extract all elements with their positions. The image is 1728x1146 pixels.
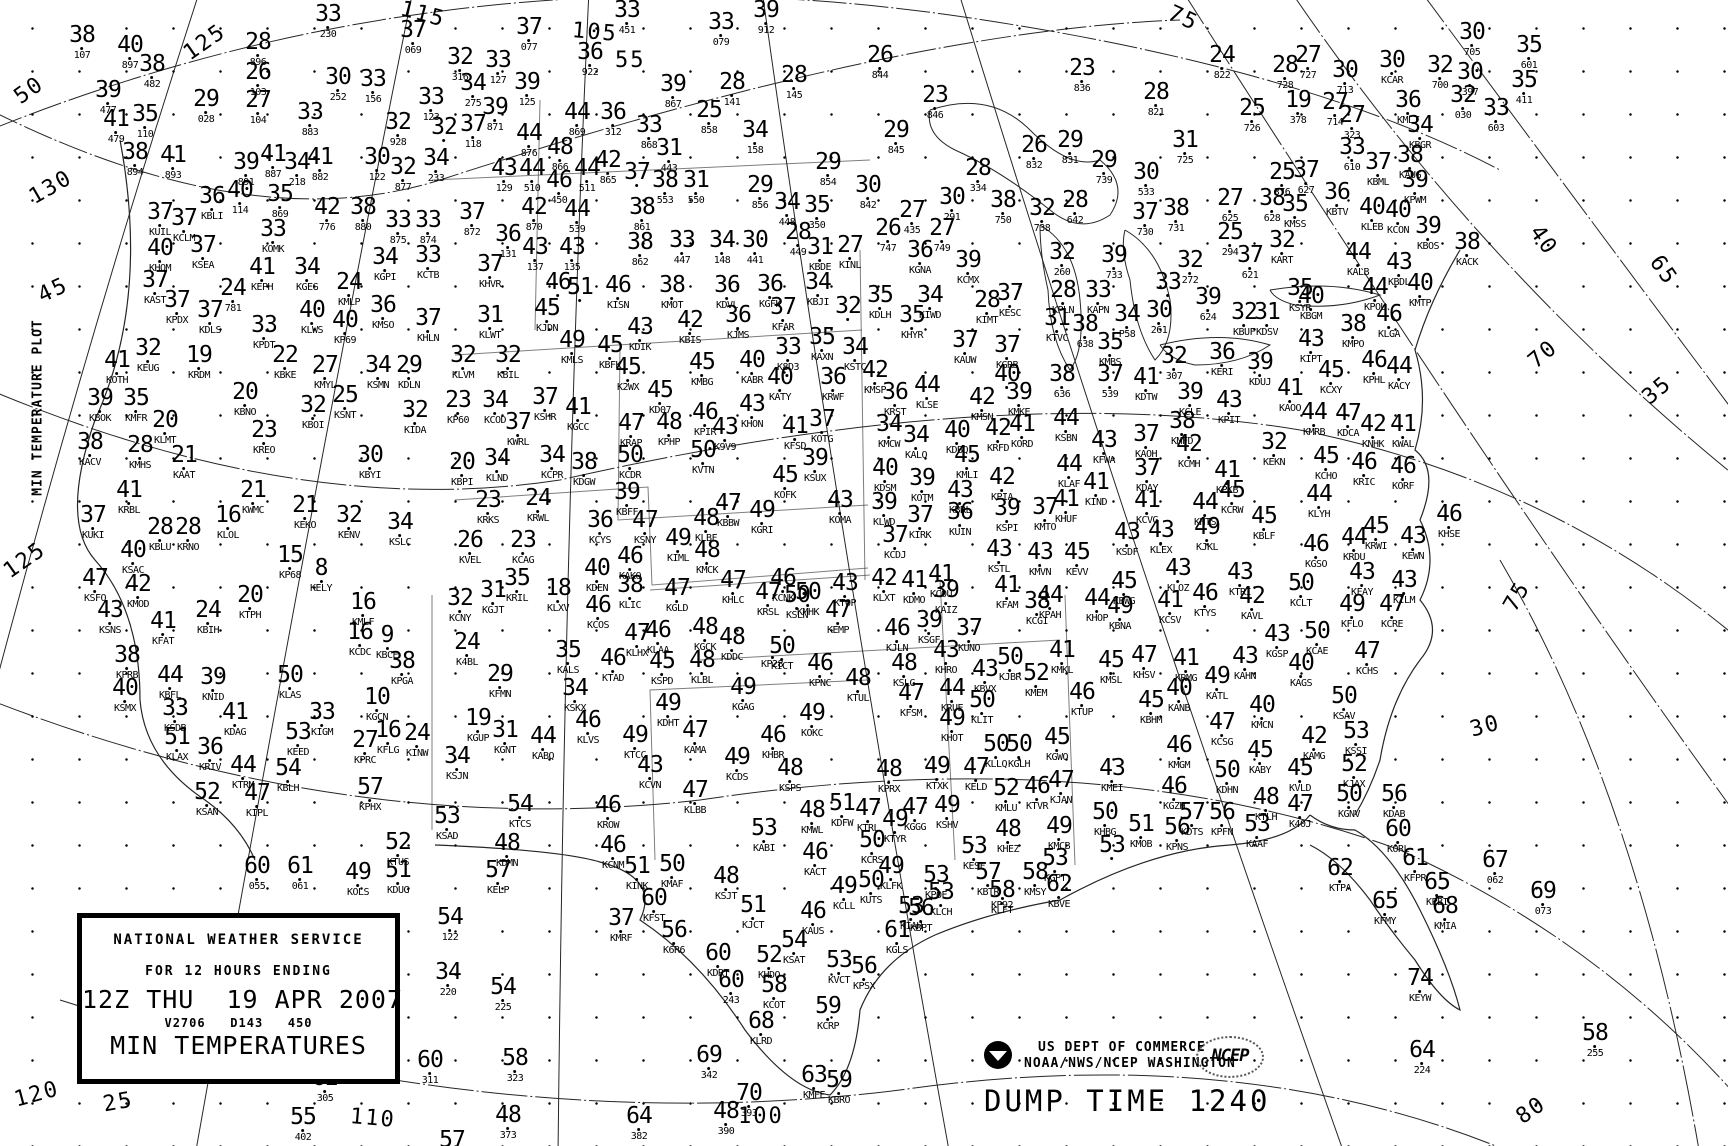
- station-plot: 38482: [139, 53, 165, 90]
- station-plot: 29854: [815, 151, 841, 188]
- station-plot: 37872: [459, 201, 485, 238]
- station-plot: 40KMTP: [1407, 272, 1433, 309]
- station-plot: 26747: [875, 217, 901, 254]
- station-plot: 35KALS: [555, 639, 581, 676]
- station-plot: 39KAIZ: [933, 579, 959, 616]
- station-plot: 34KSMN: [365, 354, 391, 391]
- station-plot: 43KDIK: [627, 316, 653, 353]
- station-plot: 26832: [1021, 134, 1047, 171]
- station-plot: 45KSPD: [649, 650, 675, 687]
- station-plot: 28KMHS: [127, 434, 153, 471]
- station-plot: 27KPRC: [352, 729, 378, 766]
- station-plot: 32: [835, 295, 861, 322]
- station-plot: 47KIPL: [244, 782, 270, 819]
- station-plot: 50KJBR: [997, 646, 1023, 683]
- station-plot: 46KLGA: [1376, 303, 1402, 340]
- station-plot: 19KRDM: [186, 344, 212, 381]
- station-plot: 41882: [307, 146, 333, 183]
- station-plot: 51KJCT: [740, 894, 766, 931]
- station-plot: 41KIND: [1083, 471, 1109, 508]
- station-plot: 51KLAX: [164, 726, 190, 763]
- station-plot: 49KCLL: [831, 875, 857, 912]
- station-plot: 40KATY: [767, 366, 793, 403]
- station-plot: 44KABQ: [530, 725, 556, 762]
- station-plot: 43KSDF: [1114, 521, 1140, 558]
- station-plot: 56K6R6: [661, 919, 687, 956]
- station-plot: 35KMSS: [1282, 193, 1308, 230]
- station-plot: 44KALB: [1345, 241, 1371, 278]
- station-plot: 37KSEA: [190, 234, 216, 271]
- station-plot: 67062: [1482, 849, 1508, 886]
- station-plot: 47KHSV: [1131, 644, 1157, 681]
- station-plot: 21KWMC: [240, 479, 266, 516]
- station-plot: 32KBOI: [300, 394, 326, 431]
- station-plot: 30705: [1459, 21, 1485, 58]
- station-plot: 34KALO: [903, 424, 929, 461]
- station-plot: 33KCTB: [415, 244, 441, 281]
- station-plot: 38731: [1163, 197, 1189, 234]
- station-plot: 44KSBN: [1053, 407, 1079, 444]
- station-plot: 28642: [1062, 189, 1088, 226]
- station-plot: 40114: [227, 179, 253, 216]
- station-plot: 48390: [713, 1100, 739, 1137]
- station-plot: 49KIML: [665, 527, 691, 564]
- station-plot: 28145: [781, 64, 807, 101]
- station-plot: 27104: [245, 89, 271, 126]
- station-plot: 20KLMT: [152, 409, 178, 446]
- station-plot: 47KEMP: [825, 599, 851, 636]
- station-plot: 37730: [1132, 201, 1158, 238]
- station-plot: 62KTPA: [1327, 857, 1353, 894]
- station-plot: 36KRIV: [197, 736, 223, 773]
- station-plot: 43KPIT: [1216, 389, 1242, 426]
- dept-of-commerce-label: US DEPT OF COMMERCE: [1038, 1040, 1206, 1055]
- station-plot: 44539: [564, 198, 590, 235]
- station-plot: 34KMCW: [876, 413, 902, 450]
- station-plot: 36KGNA: [907, 239, 933, 276]
- station-plot: 43KSNS: [97, 599, 123, 636]
- station-plot: 48KMCK: [694, 539, 720, 576]
- station-plot: 53KEED: [285, 721, 311, 758]
- station-plot: 37KESC: [997, 282, 1023, 319]
- station-plot: 43KOMA: [827, 489, 853, 526]
- station-plot: 47KCHS: [1354, 640, 1380, 677]
- station-plot: 38KLIC: [617, 574, 643, 611]
- station-plot: 34158: [742, 119, 768, 156]
- station-plot: 44876: [516, 122, 542, 159]
- station-plot: 33079: [708, 11, 734, 48]
- station-plot: 49KSHV: [934, 794, 960, 831]
- station-plot: 64224: [1409, 1039, 1435, 1076]
- station-plot: 46KTAD: [600, 647, 626, 684]
- station-plot: 49KBNA: [1107, 595, 1133, 632]
- station-plot: 45KJDN: [534, 297, 560, 334]
- station-plot: 56KDAB: [1381, 783, 1407, 820]
- station-plot: 60311: [417, 1049, 443, 1086]
- station-plot: 40KMCN: [1249, 694, 1275, 731]
- station-plot: 32877: [390, 156, 416, 193]
- station-plot: 21KAAT: [171, 444, 197, 481]
- station-plot: 46KPNC: [807, 652, 833, 689]
- station-plot: 39KBOS: [1415, 215, 1441, 252]
- station-plot: 47KSNY: [632, 509, 658, 546]
- station-plot: 42776: [314, 196, 340, 233]
- station-plot: 45KCRW: [1219, 479, 1245, 516]
- station-plot: 33KIGM: [309, 701, 335, 738]
- station-plot: 33KOMK: [260, 218, 286, 255]
- station-plot: 50KGLH: [1006, 733, 1032, 770]
- station-plot: 43KHON: [739, 393, 765, 430]
- station-plot: 43KGSP: [1264, 623, 1290, 660]
- station-plot: 50KCRS: [859, 829, 885, 866]
- station-plot: 40KSMX: [112, 677, 138, 714]
- station-plot: 36KBTV: [1324, 181, 1350, 218]
- station-plot: 46KPHL: [1361, 349, 1387, 386]
- station-plot: 23846: [922, 84, 948, 121]
- station-plot: 60243: [718, 969, 744, 1006]
- station-plot: 37KAUW: [952, 329, 978, 366]
- station-plot: 24KRWL: [525, 487, 551, 524]
- station-plot: 51KDUG: [385, 859, 411, 896]
- station-plot: 38KACK: [1454, 231, 1480, 268]
- station-plot: 33610: [1339, 136, 1365, 173]
- station-plot: 49KDHT: [655, 692, 681, 729]
- station-plot: 35KRIL: [504, 567, 530, 604]
- station-plot: 49KATL: [1204, 665, 1230, 702]
- station-plot: 48KDDC: [719, 626, 745, 663]
- station-plot: 46KTUP: [1069, 681, 1095, 718]
- station-plot: 37621: [1237, 244, 1263, 281]
- station-plot: 39KBOK: [87, 387, 113, 424]
- station-plot: 34148: [709, 229, 735, 266]
- station-plot: 28334: [965, 157, 991, 194]
- station-plot: 38636: [1049, 363, 1075, 400]
- station-plot: 41KOTH: [104, 349, 130, 386]
- station-plot: 51KDFW: [829, 792, 855, 829]
- station-plot: 28KIMT: [974, 289, 1000, 326]
- station-plot: 46KTVR: [1024, 775, 1050, 812]
- station-plot: 46KGZH: [1161, 775, 1187, 812]
- station-plot: 41KGCC: [565, 396, 591, 433]
- station-plot: 47KAMA: [682, 719, 708, 756]
- station-plot: 25376: [1269, 161, 1295, 198]
- station-plot: 41KWAL: [1390, 413, 1416, 450]
- station-plot: 53KGPT: [1042, 847, 1068, 884]
- station-plot: 35KMFR: [123, 387, 149, 424]
- station-plot: 45KEVV: [1064, 541, 1090, 578]
- station-plot: 46KISN: [605, 274, 631, 311]
- station-plot: 23836: [1069, 57, 1095, 94]
- station-plot: 41KRMG: [1173, 647, 1199, 684]
- station-plot: 38KDGW: [571, 451, 597, 488]
- station-plot: 49KJKL: [1194, 516, 1220, 553]
- latlon-label: 25: [101, 1088, 135, 1118]
- station-plot: 53: [1099, 834, 1125, 861]
- station-plot: 43KSTL: [986, 538, 1012, 575]
- station-plot: 38KMPO: [1340, 313, 1366, 350]
- station-plot: 48KTLH: [1253, 786, 1279, 823]
- station-plot: 49KMCB: [1046, 815, 1072, 852]
- station-plot: 48KTUL: [845, 667, 871, 704]
- station-plot: 33127: [485, 49, 511, 86]
- station-plot: 37069: [400, 19, 426, 56]
- station-plot: 39KOTM: [909, 467, 935, 504]
- station-plot: 45KGWO: [1044, 726, 1070, 763]
- station-plot: 53KSAD: [434, 805, 460, 842]
- station-plot: 37539: [1097, 363, 1123, 400]
- station-plot: 49KGRI: [749, 499, 775, 536]
- station-plot: 29856: [747, 174, 773, 211]
- station-plot: 41KORD: [1009, 413, 1035, 450]
- station-plot: 37KCDJ: [882, 524, 908, 561]
- station-plot: 32KIDA: [402, 399, 428, 436]
- station-plot: 30261: [1146, 299, 1172, 336]
- station-plot: 29KFMN: [487, 663, 513, 700]
- station-plot: 69073: [1530, 880, 1556, 917]
- station-plot: 41KHUF: [1053, 488, 1079, 525]
- station-plot: 45KBLF: [1251, 505, 1277, 542]
- station-plot: 49KHOT: [939, 707, 965, 744]
- station-plot: 43KEWN: [1400, 525, 1426, 562]
- station-plot: 42KNHK: [1360, 413, 1386, 450]
- station-plot: 35869: [267, 183, 293, 220]
- station-plot: 48KSJT: [713, 865, 739, 902]
- station-plot: 41KFAT: [150, 610, 176, 647]
- station-plot: 43129: [491, 157, 517, 194]
- station-plot: 38894: [122, 141, 148, 178]
- station-plot: 32030: [1450, 84, 1476, 121]
- station-plot: 44KLAF: [1056, 453, 1082, 490]
- station-plot: 40KLEB: [1359, 196, 1385, 233]
- station-plot: 38861: [629, 196, 655, 233]
- station-plot: 49KOLS: [345, 861, 371, 898]
- station-plot: 32307: [1161, 345, 1187, 382]
- station-plot: 70393: [736, 1082, 762, 1119]
- station-plot: 44KMRB: [1301, 401, 1327, 438]
- station-plot: 32KBIL: [495, 344, 521, 381]
- station-plot: 44KLSE: [914, 374, 940, 411]
- station-plot: 32KENV: [336, 504, 362, 541]
- station-plot: 47KGLD: [664, 577, 690, 614]
- station-plot: 38KMOT: [659, 274, 685, 311]
- station-plot: 23KREO: [251, 419, 277, 456]
- station-plot: 42KRFD: [985, 417, 1011, 454]
- station-plot: 59KBRO: [826, 1069, 852, 1106]
- station-plot: 33875: [385, 209, 411, 246]
- legend-valid-time: 12Z THU 19 APR 2007: [82, 985, 395, 1014]
- station-plot: 21KEKO: [292, 494, 318, 531]
- station-plot: 49KTXK: [924, 755, 950, 792]
- station-plot: 37KPDX: [164, 289, 190, 326]
- station-plot: 37627: [1293, 159, 1319, 196]
- station-plot: 52KMEM: [1023, 662, 1049, 699]
- station-plot: 63KMFE: [801, 1064, 827, 1101]
- station-plot: 44KACY: [1386, 355, 1412, 392]
- station-plot: 48KHEZ: [995, 818, 1021, 855]
- station-plot: 39624: [1195, 286, 1221, 323]
- station-plot: 8KELY: [310, 557, 332, 594]
- station-plot: 47KLBB: [682, 779, 708, 816]
- station-plot: 60055: [244, 855, 270, 892]
- station-plot: 43137: [522, 236, 548, 273]
- station-plot: 24781: [220, 277, 246, 314]
- station-plot: 39733: [1101, 244, 1127, 281]
- station-plot: 39KNID: [200, 666, 226, 703]
- station-plot: 58255: [1582, 1022, 1608, 1059]
- vertical-axis-title: MIN TEMPERATURE PLOT: [31, 308, 46, 508]
- legend-subtitle: FOR 12 HOURS ENDING: [82, 964, 395, 979]
- station-plot: 47KGGG: [902, 796, 928, 833]
- station-plot: KP92: [991, 897, 1013, 911]
- station-plot: 42KMOD: [125, 573, 151, 610]
- station-plot: 46KORF: [1390, 455, 1416, 492]
- station-plot: 36KRWF: [820, 366, 846, 403]
- station-plot: 31KGNT: [492, 719, 518, 756]
- station-plot: 54KBLH: [275, 757, 301, 794]
- station-plot: 40KABR: [739, 349, 765, 386]
- station-plot: 50KLAS: [277, 664, 303, 701]
- station-plot: 41KMKL: [1049, 639, 1075, 676]
- station-plot: 42KCMH: [1176, 433, 1202, 470]
- latlon-label: 110: [349, 1104, 397, 1133]
- station-plot: 38862: [627, 231, 653, 268]
- station-plot: 37KWRL: [505, 411, 531, 448]
- station-plot: 49KOKC: [799, 702, 825, 739]
- station-plot: 35601: [1516, 34, 1542, 71]
- station-plot: 45KMBG: [689, 351, 715, 388]
- station-plot: 38KACV: [77, 431, 103, 468]
- station-plot: 45K2WX: [615, 356, 641, 393]
- station-plot: 46KJLN: [884, 617, 910, 654]
- station-plot: 32KEKN: [1261, 431, 1287, 468]
- station-plot: 46KTYS: [1192, 582, 1218, 619]
- station-plot: 34KGEG: [294, 256, 320, 293]
- station-plot: 40KBGM: [1298, 285, 1324, 322]
- station-plot: 54122: [437, 906, 463, 943]
- station-plot: 40KP69: [332, 309, 358, 346]
- station-plot: 24822: [1209, 44, 1235, 81]
- station-plot: 43KMEI: [1099, 757, 1125, 794]
- station-plot: 29831: [1057, 129, 1083, 166]
- station-plot: 27KINL: [837, 234, 863, 271]
- station-plot: 49KFLO: [1339, 593, 1365, 630]
- station-plot: 44510: [519, 157, 545, 194]
- station-plot: 23KCAG: [510, 529, 536, 566]
- station-plot: 35110: [132, 103, 158, 140]
- station-plot: 41KDAG: [222, 701, 248, 738]
- station-plot: 46KHSE: [1436, 503, 1462, 540]
- station-plot: 31725: [1172, 129, 1198, 166]
- station-plot: 22KBKE: [272, 344, 298, 381]
- station-plot: 47KCSG: [1209, 711, 1235, 748]
- legend-parameter: MIN TEMPERATURES: [82, 1031, 395, 1060]
- station-plot: 29739: [1091, 149, 1117, 186]
- station-plot: 46KRIC: [1351, 451, 1377, 488]
- station-plot: 24KBIH: [195, 599, 221, 636]
- station-plot: 31550: [683, 169, 709, 206]
- station-plot: 36KJMS: [725, 304, 751, 341]
- station-plot: 74KEYW: [1407, 967, 1433, 1004]
- station-plot: 34220: [435, 961, 461, 998]
- station-plot: 46KACT: [802, 841, 828, 878]
- station-plot: 32KLVM: [450, 344, 476, 381]
- station-plot: 35411: [1511, 69, 1537, 106]
- station-plot: 44869: [564, 101, 590, 138]
- station-plot: 34KIWD: [917, 284, 943, 321]
- station-plot: 34KSJN: [444, 745, 470, 782]
- station-plot: 38553: [652, 169, 678, 206]
- station-plot: 32260: [1049, 241, 1075, 278]
- station-plot: 30KCAR: [1379, 49, 1405, 86]
- station-plot: 37KUNO: [956, 617, 982, 654]
- station-plot: 46KROW: [595, 794, 621, 831]
- station-plot: 39867: [660, 73, 686, 110]
- station-plot: 57: [439, 1129, 465, 1146]
- station-plot: 23KP60: [445, 389, 471, 426]
- station-plot: 46KMGM: [1166, 734, 1192, 771]
- station-plot: 31KLWT: [477, 304, 503, 341]
- station-plot: 33883: [297, 101, 323, 138]
- station-plot: 20KTPH: [237, 584, 263, 621]
- station-plot: 30KBYI: [357, 444, 383, 481]
- station-plot: 36KCYS: [587, 509, 613, 546]
- station-plot: 37KSHR: [532, 386, 558, 423]
- station-plot: 40KDEN: [584, 557, 610, 594]
- station-plot: 55402: [290, 1106, 316, 1143]
- station-plot: 56KPSX: [851, 955, 877, 992]
- station-plot: 19378: [1285, 89, 1311, 126]
- station-plot: 25KSNT: [332, 384, 358, 421]
- station-plot: 41893: [160, 144, 186, 181]
- station-plot: 32KCNY: [447, 587, 473, 624]
- station-plot: 33: [1155, 271, 1181, 298]
- station-plot: 30533: [1133, 161, 1159, 198]
- station-plot: 34KGPI: [372, 246, 398, 283]
- station-plot: 34KSLC: [387, 511, 413, 548]
- station-plot: 38107: [69, 24, 95, 61]
- station-plot: 36KUIN: [947, 501, 973, 538]
- station-plot: 23KRKS: [475, 489, 501, 526]
- station-plot: KP28: [761, 656, 783, 670]
- station-plot: 43KCVN: [637, 754, 663, 791]
- station-plot: 29845: [883, 119, 909, 156]
- station-plot: 37077: [516, 16, 542, 53]
- station-plot: 35KDLH: [867, 284, 893, 321]
- station-plot: 32928: [385, 111, 411, 148]
- station-plot: 41KDTW: [1133, 366, 1159, 403]
- station-plot: 24KMLP: [336, 271, 362, 308]
- station-plot: 27727: [1295, 44, 1321, 81]
- station-plot: 30441: [742, 229, 768, 266]
- station-plot: 50KCLT: [1288, 572, 1314, 609]
- station-plot: 28728: [1272, 54, 1298, 91]
- station-plot: 38KPGA: [389, 650, 415, 687]
- station-plot: 36KERI: [1209, 341, 1235, 378]
- station-plot: 39KCMX: [955, 249, 981, 286]
- station-plot: 34KCOD: [482, 389, 508, 426]
- station-plot: 39KSUX: [802, 447, 828, 484]
- station-plot: 30842: [855, 174, 881, 211]
- station-plot: 43135: [559, 236, 585, 273]
- station-plot: 47KCRE: [1379, 593, 1405, 630]
- station-plot: 45KCXY: [1318, 359, 1344, 396]
- station-plot: 41KDMO: [901, 569, 927, 606]
- station-plot: 46KLVS: [575, 709, 601, 746]
- station-plot: 47KDCA: [1335, 402, 1361, 439]
- station-plot: 68KMIA: [1432, 895, 1458, 932]
- station-plot: 58KCOT: [761, 974, 787, 1011]
- station-plot: 37KOTG: [809, 408, 835, 445]
